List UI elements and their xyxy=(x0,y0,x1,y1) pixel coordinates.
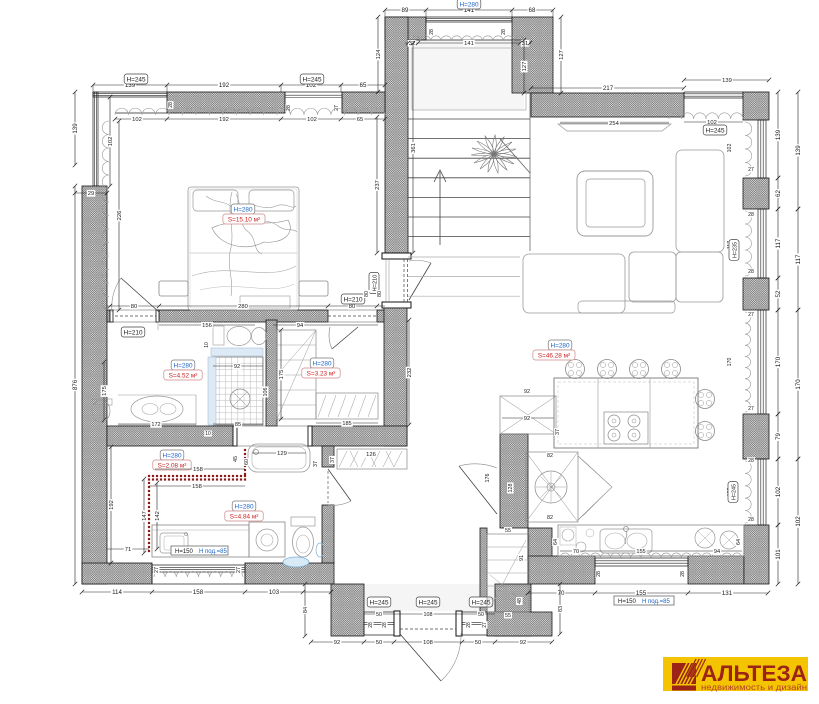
svg-text:64: 64 xyxy=(553,539,559,545)
svg-text:217: 217 xyxy=(603,85,614,92)
svg-text:102: 102 xyxy=(775,486,782,497)
svg-text:H=280: H=280 xyxy=(312,360,331,367)
svg-text:62: 62 xyxy=(775,190,782,197)
svg-text:108: 108 xyxy=(423,640,433,646)
svg-text:175: 175 xyxy=(102,386,108,396)
svg-text:92: 92 xyxy=(334,640,340,646)
svg-text:80: 80 xyxy=(364,291,370,297)
svg-text:S=2.08 м²: S=2.08 м² xyxy=(158,462,187,469)
svg-text:H=245: H=245 xyxy=(471,599,490,606)
svg-text:28: 28 xyxy=(382,622,388,628)
svg-text:68: 68 xyxy=(529,7,536,14)
svg-text:92: 92 xyxy=(524,389,530,395)
svg-text:102: 102 xyxy=(795,516,802,527)
svg-text:50: 50 xyxy=(478,612,484,618)
svg-text:117: 117 xyxy=(775,238,782,248)
svg-text:172: 172 xyxy=(151,422,160,428)
svg-text:139: 139 xyxy=(795,145,802,156)
svg-text:91: 91 xyxy=(519,555,525,561)
svg-text:28: 28 xyxy=(368,622,374,628)
svg-text:94: 94 xyxy=(297,323,304,329)
svg-text:170: 170 xyxy=(727,358,733,367)
svg-text:237: 237 xyxy=(375,180,381,190)
svg-text:80: 80 xyxy=(131,304,137,310)
svg-text:83: 83 xyxy=(558,606,564,612)
svg-text:142: 142 xyxy=(155,511,161,521)
svg-text:80: 80 xyxy=(349,304,355,310)
svg-text:52: 52 xyxy=(775,290,782,297)
svg-text:55: 55 xyxy=(505,613,511,619)
svg-text:127: 127 xyxy=(522,62,528,72)
svg-text:37: 37 xyxy=(313,461,319,467)
svg-text:28: 28 xyxy=(680,571,686,577)
svg-text:H=280: H=280 xyxy=(162,452,181,459)
svg-text:128: 128 xyxy=(508,484,514,493)
svg-text:50: 50 xyxy=(376,612,382,618)
svg-text:29: 29 xyxy=(88,191,94,197)
svg-text:94: 94 xyxy=(714,549,720,555)
svg-text:226: 226 xyxy=(117,211,123,221)
svg-text:27: 27 xyxy=(748,167,754,173)
svg-text:27: 27 xyxy=(236,567,242,573)
svg-text:55: 55 xyxy=(505,528,511,534)
svg-text:28: 28 xyxy=(748,517,754,523)
svg-text:79: 79 xyxy=(775,433,782,440)
svg-text:28: 28 xyxy=(501,29,507,35)
svg-text:82: 82 xyxy=(547,515,553,521)
svg-text:28: 28 xyxy=(748,212,754,218)
svg-text:27: 27 xyxy=(334,105,340,111)
svg-text:170: 170 xyxy=(795,379,802,390)
svg-text:H=235: H=235 xyxy=(732,242,738,258)
svg-text:102: 102 xyxy=(108,137,114,147)
svg-text:H=150: H=150 xyxy=(175,549,194,555)
svg-text:27: 27 xyxy=(154,567,160,573)
svg-text:10: 10 xyxy=(205,431,211,437)
svg-text:92: 92 xyxy=(524,416,530,422)
svg-text:65: 65 xyxy=(360,82,367,89)
svg-text:64: 64 xyxy=(736,539,742,545)
svg-text:37: 37 xyxy=(555,429,561,435)
svg-text:102: 102 xyxy=(307,117,317,123)
svg-text:80: 80 xyxy=(377,291,383,297)
svg-text:10: 10 xyxy=(204,342,210,348)
svg-text:192: 192 xyxy=(109,500,115,510)
svg-text:85: 85 xyxy=(235,422,241,428)
svg-text:158: 158 xyxy=(193,589,204,596)
svg-text:37: 37 xyxy=(330,457,336,463)
svg-text:H=280: H=280 xyxy=(550,342,569,349)
svg-text:158: 158 xyxy=(192,484,202,490)
svg-text:H=245: H=245 xyxy=(731,484,737,500)
svg-text:50: 50 xyxy=(475,640,481,646)
svg-text:139: 139 xyxy=(722,78,732,84)
svg-text:71: 71 xyxy=(125,547,131,553)
svg-text:H=280: H=280 xyxy=(234,503,253,510)
svg-text:S=4.84 м²: S=4.84 м² xyxy=(230,513,259,520)
svg-text:192: 192 xyxy=(219,82,230,89)
svg-text:28: 28 xyxy=(748,458,754,464)
svg-text:108: 108 xyxy=(424,612,433,618)
svg-text:155: 155 xyxy=(636,549,645,555)
svg-text:131: 131 xyxy=(722,590,733,597)
svg-text:S=3.23 м²: S=3.23 м² xyxy=(307,370,336,377)
svg-text:60: 60 xyxy=(244,459,250,465)
svg-text:H=150: H=150 xyxy=(618,599,637,605)
svg-text:254: 254 xyxy=(609,121,619,127)
svg-text:232: 232 xyxy=(407,368,413,378)
svg-text:361: 361 xyxy=(411,143,417,153)
svg-text:48: 48 xyxy=(517,598,523,604)
svg-text:28: 28 xyxy=(168,102,174,108)
svg-text:S=46.28 м²: S=46.28 м² xyxy=(538,352,570,359)
svg-text:H=245: H=245 xyxy=(705,127,724,134)
svg-text:S=15.10 м²: S=15.10 м² xyxy=(228,216,260,223)
svg-text:28: 28 xyxy=(429,29,435,35)
svg-text:50: 50 xyxy=(376,640,382,646)
svg-text:103: 103 xyxy=(269,589,280,596)
svg-text:27: 27 xyxy=(748,312,754,318)
svg-text:280: 280 xyxy=(238,304,248,310)
svg-text:28: 28 xyxy=(596,571,602,577)
svg-text:H=245: H=245 xyxy=(418,599,437,606)
svg-text:45: 45 xyxy=(233,456,239,462)
svg-text:H=245: H=245 xyxy=(369,599,388,606)
svg-text:117: 117 xyxy=(795,254,802,264)
svg-text:175: 175 xyxy=(279,370,285,380)
svg-text:82: 82 xyxy=(547,453,553,459)
svg-text:139: 139 xyxy=(72,123,79,134)
svg-text:114: 114 xyxy=(112,589,122,596)
svg-text:70: 70 xyxy=(573,549,579,555)
svg-text:H под.=85: H под.=85 xyxy=(642,599,670,605)
svg-text:H=210: H=210 xyxy=(123,329,142,336)
svg-text:H=280: H=280 xyxy=(459,1,478,8)
svg-text:31: 31 xyxy=(522,41,528,47)
svg-text:H=280: H=280 xyxy=(233,206,252,213)
svg-text:H=280: H=280 xyxy=(173,362,192,369)
svg-text:89: 89 xyxy=(402,7,409,14)
svg-text:92: 92 xyxy=(520,640,526,646)
svg-text:28: 28 xyxy=(286,105,292,111)
svg-text:84: 84 xyxy=(303,607,309,613)
svg-text:H=245: H=245 xyxy=(126,76,145,83)
svg-text:185: 185 xyxy=(342,421,351,427)
svg-text:192: 192 xyxy=(219,117,229,123)
svg-text:H под.=85: H под.=85 xyxy=(199,549,227,555)
svg-text:170: 170 xyxy=(775,356,782,367)
svg-text:H=210: H=210 xyxy=(343,296,362,303)
svg-text:27: 27 xyxy=(748,406,754,412)
svg-text:876: 876 xyxy=(72,379,79,390)
svg-text:92: 92 xyxy=(234,364,240,370)
svg-text:127: 127 xyxy=(559,50,565,60)
svg-text:65: 65 xyxy=(357,117,363,123)
svg-text:S=4.52 м²: S=4.52 м² xyxy=(169,372,198,379)
svg-text:147: 147 xyxy=(142,511,148,521)
svg-text:158: 158 xyxy=(193,467,203,473)
svg-text:156: 156 xyxy=(202,323,212,329)
svg-text:28: 28 xyxy=(748,269,754,275)
svg-text:H=245: H=245 xyxy=(302,76,321,83)
svg-text:28: 28 xyxy=(466,622,472,628)
svg-text:141: 141 xyxy=(464,41,474,47)
svg-text:70: 70 xyxy=(558,590,565,597)
svg-text:102: 102 xyxy=(727,144,733,153)
svg-text:126: 126 xyxy=(366,452,376,458)
svg-text:102: 102 xyxy=(132,117,142,123)
svg-text:129: 129 xyxy=(277,451,287,457)
svg-text:27: 27 xyxy=(482,622,488,628)
svg-text:106: 106 xyxy=(263,388,269,397)
svg-text:101: 101 xyxy=(775,549,782,560)
svg-text:H=210: H=210 xyxy=(372,275,378,292)
svg-text:недвижимость и дизайн: недвижимость и дизайн xyxy=(701,683,807,692)
svg-text:176: 176 xyxy=(485,474,491,483)
svg-text:139: 139 xyxy=(775,129,782,140)
svg-text:124: 124 xyxy=(376,49,382,59)
